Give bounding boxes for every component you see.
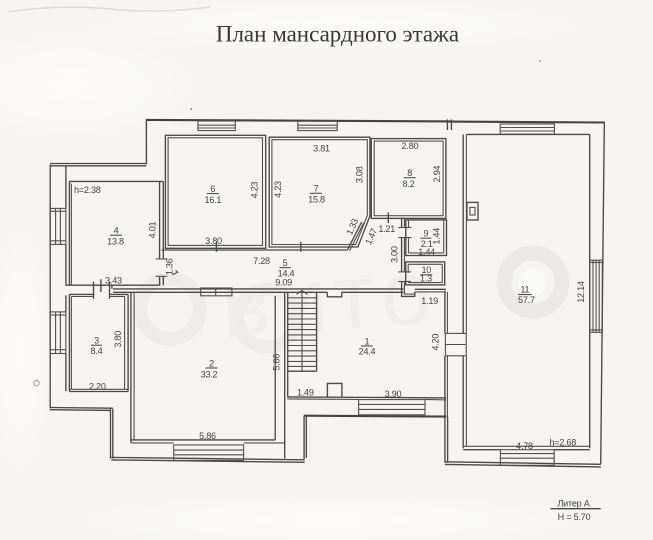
svg-text:1.19: 1.19 xyxy=(421,296,438,306)
svg-text:7: 7 xyxy=(314,184,319,194)
svg-text:2.80: 2.80 xyxy=(402,141,419,151)
svg-text:8.4: 8.4 xyxy=(91,346,103,356)
svg-text:24.4: 24.4 xyxy=(359,346,376,356)
svg-text:План мансардного этажа: План мансардного этажа xyxy=(216,22,459,47)
svg-text:16.1: 16.1 xyxy=(204,195,221,205)
svg-text:5.86: 5.86 xyxy=(199,431,216,441)
svg-text:3.80: 3.80 xyxy=(205,236,222,246)
svg-text:5.66: 5.66 xyxy=(272,354,282,371)
svg-text:4.78: 4.78 xyxy=(516,441,533,451)
svg-text:1.44: 1.44 xyxy=(418,247,435,257)
svg-text:13.8: 13.8 xyxy=(107,237,124,247)
svg-text:4.23: 4.23 xyxy=(249,181,259,198)
svg-text:1.49: 1.49 xyxy=(297,387,314,397)
svg-text:1.3: 1.3 xyxy=(420,273,432,283)
svg-text:1.21: 1.21 xyxy=(378,224,395,234)
svg-text:4.01: 4.01 xyxy=(147,221,157,238)
svg-text:4.20: 4.20 xyxy=(431,334,441,351)
svg-text:4: 4 xyxy=(114,226,119,236)
svg-text:1: 1 xyxy=(364,336,369,346)
svg-text:3: 3 xyxy=(94,336,99,346)
svg-text:2.94: 2.94 xyxy=(432,165,442,182)
svg-text:вито: вито xyxy=(218,241,441,358)
svg-text:2.20: 2.20 xyxy=(89,381,106,391)
svg-text:3.08: 3.08 xyxy=(354,166,364,183)
svg-text:3.43: 3.43 xyxy=(105,275,122,285)
svg-text:57.7: 57.7 xyxy=(518,295,535,305)
svg-text:15.8: 15.8 xyxy=(308,195,325,205)
svg-text:7.28: 7.28 xyxy=(253,256,270,266)
svg-text:Литер А: Литер А xyxy=(557,499,590,509)
svg-text:3.00: 3.00 xyxy=(389,246,399,263)
svg-text:11: 11 xyxy=(520,285,529,295)
svg-text:1.36: 1.36 xyxy=(165,258,175,275)
svg-text:5: 5 xyxy=(283,258,288,268)
svg-text:1.44: 1.44 xyxy=(431,228,441,245)
svg-text:3.80: 3.80 xyxy=(113,331,123,348)
svg-text:8: 8 xyxy=(407,168,412,178)
svg-text:12.14: 12.14 xyxy=(576,281,586,303)
svg-text:3.81: 3.81 xyxy=(313,144,330,154)
svg-text:6: 6 xyxy=(210,184,215,194)
svg-text:9.09: 9.09 xyxy=(275,278,292,288)
svg-text:2: 2 xyxy=(209,358,214,368)
svg-text:9: 9 xyxy=(423,229,428,239)
svg-text:4.23: 4.23 xyxy=(273,181,283,198)
svg-text:33.2: 33.2 xyxy=(201,369,218,379)
svg-text:Н = 5.70: Н = 5.70 xyxy=(558,512,591,522)
svg-text:8.2: 8.2 xyxy=(403,179,415,189)
svg-text:3.90: 3.90 xyxy=(385,389,402,399)
svg-text:h=2.68: h=2.68 xyxy=(550,438,577,448)
svg-text:h=2.38: h=2.38 xyxy=(74,185,101,195)
